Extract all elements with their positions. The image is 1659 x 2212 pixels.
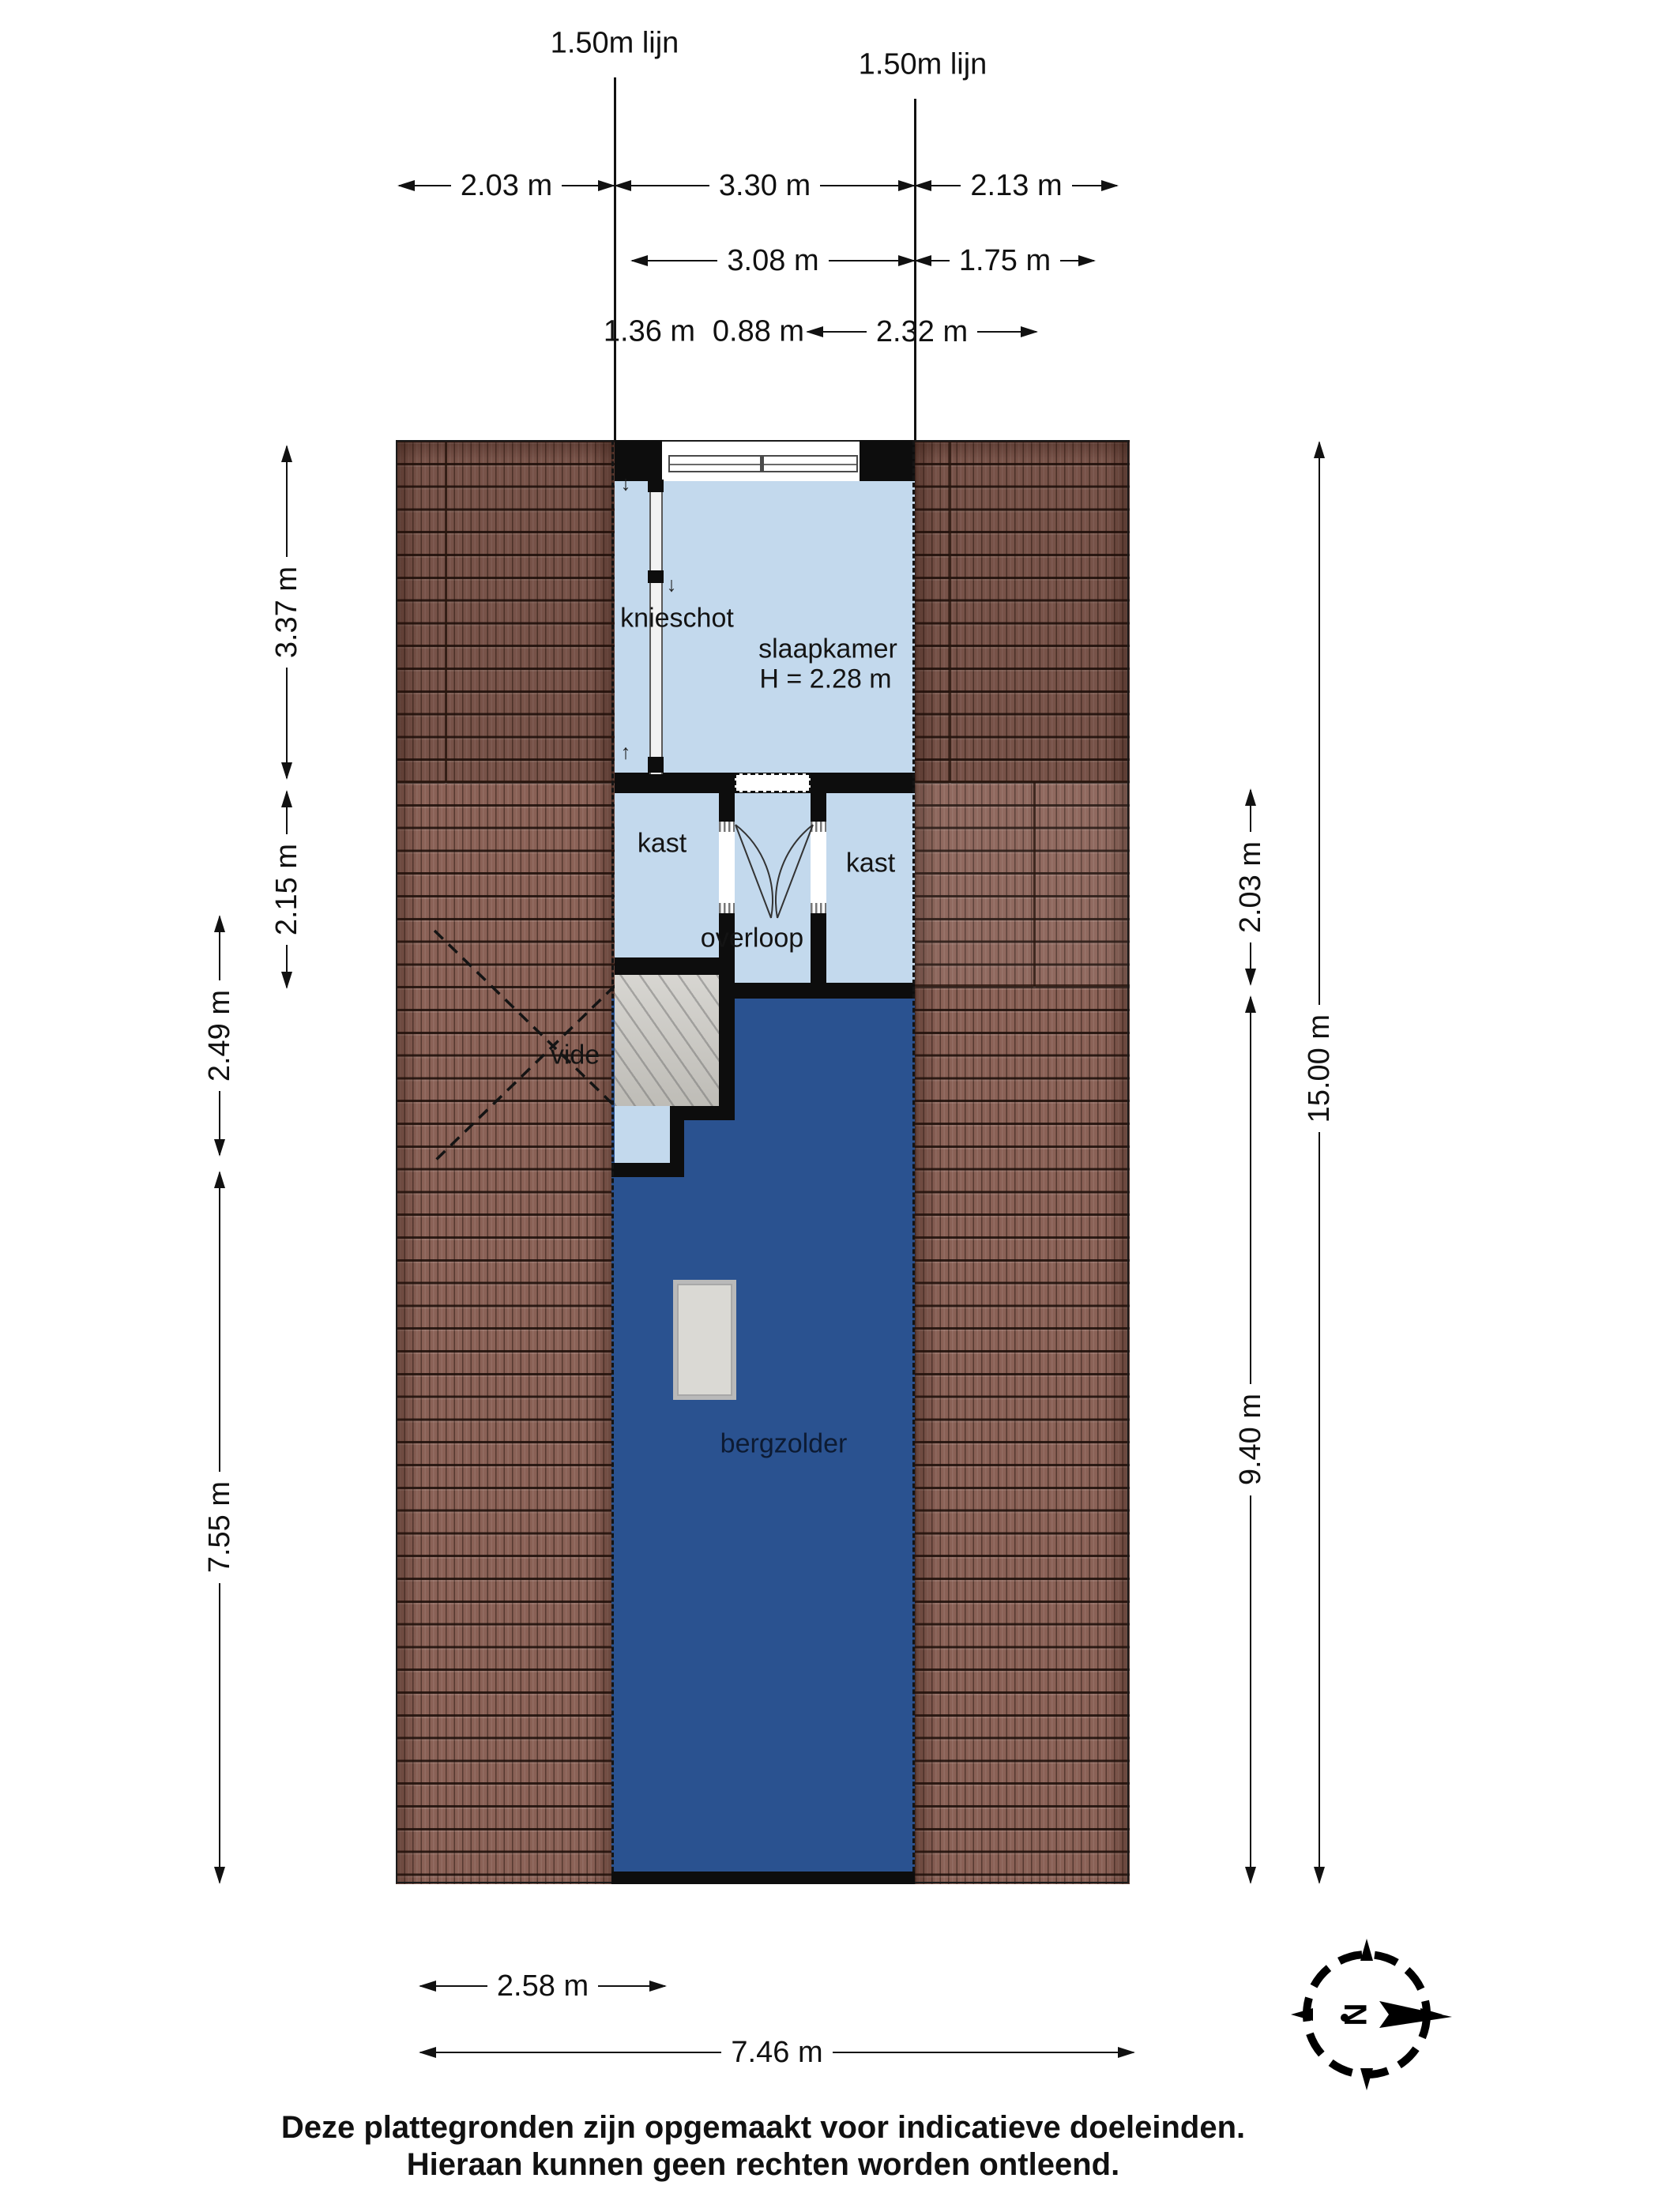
dim-right-940: 9.40 m <box>1232 997 1269 1883</box>
compass-icon: N <box>1280 1928 1454 2101</box>
dim-line <box>219 1583 221 1883</box>
vide-edge-strip <box>615 1106 670 1163</box>
room-label-kast-left: kast <box>638 829 687 860</box>
dim-bottom-258: 2.58 m <box>420 1969 665 2003</box>
dim-label-136: 1.36 m <box>604 315 695 349</box>
dim-label: 2.15 m <box>270 834 304 945</box>
dim-line <box>1250 997 1252 1384</box>
wall-step-horizontal-2 <box>611 1163 684 1177</box>
dim-line <box>598 1985 665 1988</box>
dim-line <box>1250 1495 1252 1883</box>
dim-label: 15.00 m <box>1303 1005 1337 1132</box>
compass-north-label: N <box>1337 2003 1372 2026</box>
dim-line <box>916 185 961 187</box>
dim-right-1500: 15.00 m <box>1301 442 1337 1883</box>
dim-top-203: 2.03 m <box>399 169 614 202</box>
dim-top-213: 2.13 m <box>916 169 1117 202</box>
compass-tick-west <box>1291 2008 1313 2021</box>
dim-line <box>829 260 914 262</box>
door-arc-icon <box>711 814 837 931</box>
dim-line <box>286 668 288 778</box>
ref-line-label-right: 1.50m lijn <box>859 48 987 82</box>
footer-disclaimer: Deze plattegronden zijn opgemaakt voor i… <box>0 2109 1526 2184</box>
dim-line <box>1072 185 1117 187</box>
dim-top-330: 3.30 m <box>615 169 914 202</box>
dim-label: 1.75 m <box>950 244 1060 278</box>
ref-line-label-left: 1.50m lijn <box>551 27 679 61</box>
dim-line <box>219 1091 221 1155</box>
dim-line <box>820 185 914 187</box>
room-label-knieschot: knieschot <box>620 604 734 634</box>
skylight <box>673 1280 736 1400</box>
dim-line <box>219 1172 221 1472</box>
dim-top-308: 3.08 m <box>632 244 914 277</box>
knieschot-joint <box>648 757 664 773</box>
dim-label: 2.03 m <box>1234 832 1268 942</box>
dim-label: 2.49 m <box>203 980 237 1091</box>
staircase <box>615 975 719 1106</box>
roofline-dashed-left <box>611 440 614 1872</box>
dim-label: 3.08 m <box>717 244 828 278</box>
footer-line-2: Hieraan kunnen geen rechten worden ontle… <box>0 2146 1526 2184</box>
room-label-slaapkamer-height: H = 2.28 m <box>759 664 891 695</box>
dim-label: 2.58 m <box>487 1969 598 2003</box>
hatch-arrow-icon: ↑ <box>621 740 631 765</box>
dim-line <box>420 1985 487 1988</box>
knieschot-joint <box>648 480 664 492</box>
dim-line <box>286 945 288 987</box>
dim-line <box>1319 442 1321 1005</box>
dim-bottom-746: 7.46 m <box>420 2036 1134 2069</box>
room-label-bergzolder: bergzolder <box>720 1429 848 1460</box>
slaapkamer-doorway-opening <box>735 773 811 792</box>
dim-line <box>1250 790 1252 832</box>
footer-line-1: Deze plattegronden zijn opgemaakt voor i… <box>0 2109 1526 2146</box>
dim-left-215: 2.15 m <box>269 792 305 987</box>
room-label-slaapkamer: slaapkamer <box>758 634 897 665</box>
knieschot-joint <box>648 570 664 583</box>
room-label-vide: vide <box>551 1040 600 1071</box>
dim-line <box>807 331 867 333</box>
kast-right-floor <box>826 793 915 983</box>
extension-line-left <box>614 77 616 440</box>
dim-line <box>286 792 288 834</box>
dim-line <box>399 185 451 187</box>
north-arrow-icon <box>1379 2001 1452 2028</box>
hatch-arrow-icon: ↓ <box>621 472 631 496</box>
dim-line <box>1319 1132 1321 1883</box>
dim-top-175: 1.75 m <box>916 244 1094 277</box>
dim-label: 3.30 m <box>709 169 820 203</box>
wall-kast-left-bottom <box>615 957 735 975</box>
dim-left-337: 3.37 m <box>269 446 305 778</box>
dim-left-249: 2.49 m <box>201 916 238 1155</box>
dim-line <box>615 185 709 187</box>
dim-line <box>916 260 950 262</box>
dim-label: 2.03 m <box>451 169 562 203</box>
compass-tick-north <box>1360 1939 1373 1961</box>
wall-top-right <box>860 440 915 481</box>
dim-line <box>1060 260 1094 262</box>
dim-label: 7.46 m <box>721 2036 832 2070</box>
dim-right-203: 2.03 m <box>1232 790 1269 984</box>
dim-label: 7.55 m <box>203 1472 237 1582</box>
dim-top-232: 2.32 m <box>807 315 1036 348</box>
dim-label: 9.40 m <box>1234 1384 1268 1495</box>
dim-line <box>632 260 717 262</box>
dim-line <box>286 446 288 557</box>
wall-step-vertical <box>670 1106 684 1164</box>
dim-line <box>420 2052 721 2054</box>
window-divider <box>760 455 764 472</box>
window-icon <box>668 455 858 472</box>
roofline-dashed-right <box>912 440 915 1872</box>
dim-line <box>562 185 614 187</box>
room-label-kast-right: kast <box>846 848 895 879</box>
dim-line <box>1250 942 1252 984</box>
dim-line <box>977 331 1036 333</box>
dim-label: 2.13 m <box>961 169 1071 203</box>
dim-label-088: 0.88 m <box>713 315 804 349</box>
dim-label: 2.32 m <box>867 315 977 349</box>
dim-line <box>219 916 221 980</box>
hatch-arrow-icon: ↓ <box>667 573 677 597</box>
wall-bergzolder-top <box>719 983 915 999</box>
dim-label: 3.37 m <box>270 557 304 668</box>
dim-line <box>833 2052 1134 2054</box>
dim-left-755: 7.55 m <box>201 1172 238 1883</box>
floorplan-page: ↓ ↓ ↑ knieschot slaapkamer H = 2.28 m ka… <box>0 0 1659 2212</box>
wall-bergzolder-bottom <box>611 1872 915 1884</box>
room-label-overloop: overloop <box>701 924 803 954</box>
compass-tick-south <box>1360 2068 1373 2090</box>
